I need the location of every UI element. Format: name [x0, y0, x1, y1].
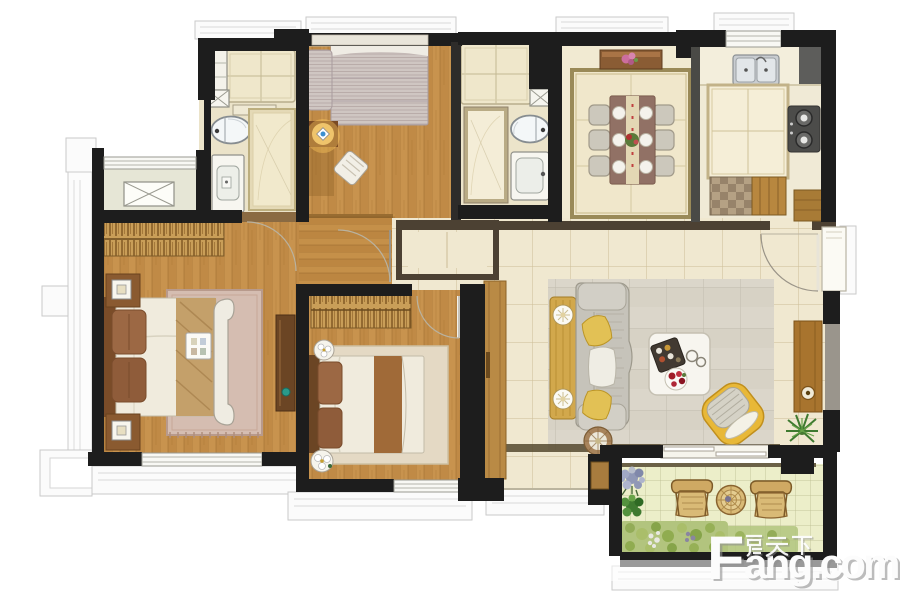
svg-text:ang.com: ang.com [744, 540, 898, 587]
svg-text:F: F [707, 524, 743, 592]
